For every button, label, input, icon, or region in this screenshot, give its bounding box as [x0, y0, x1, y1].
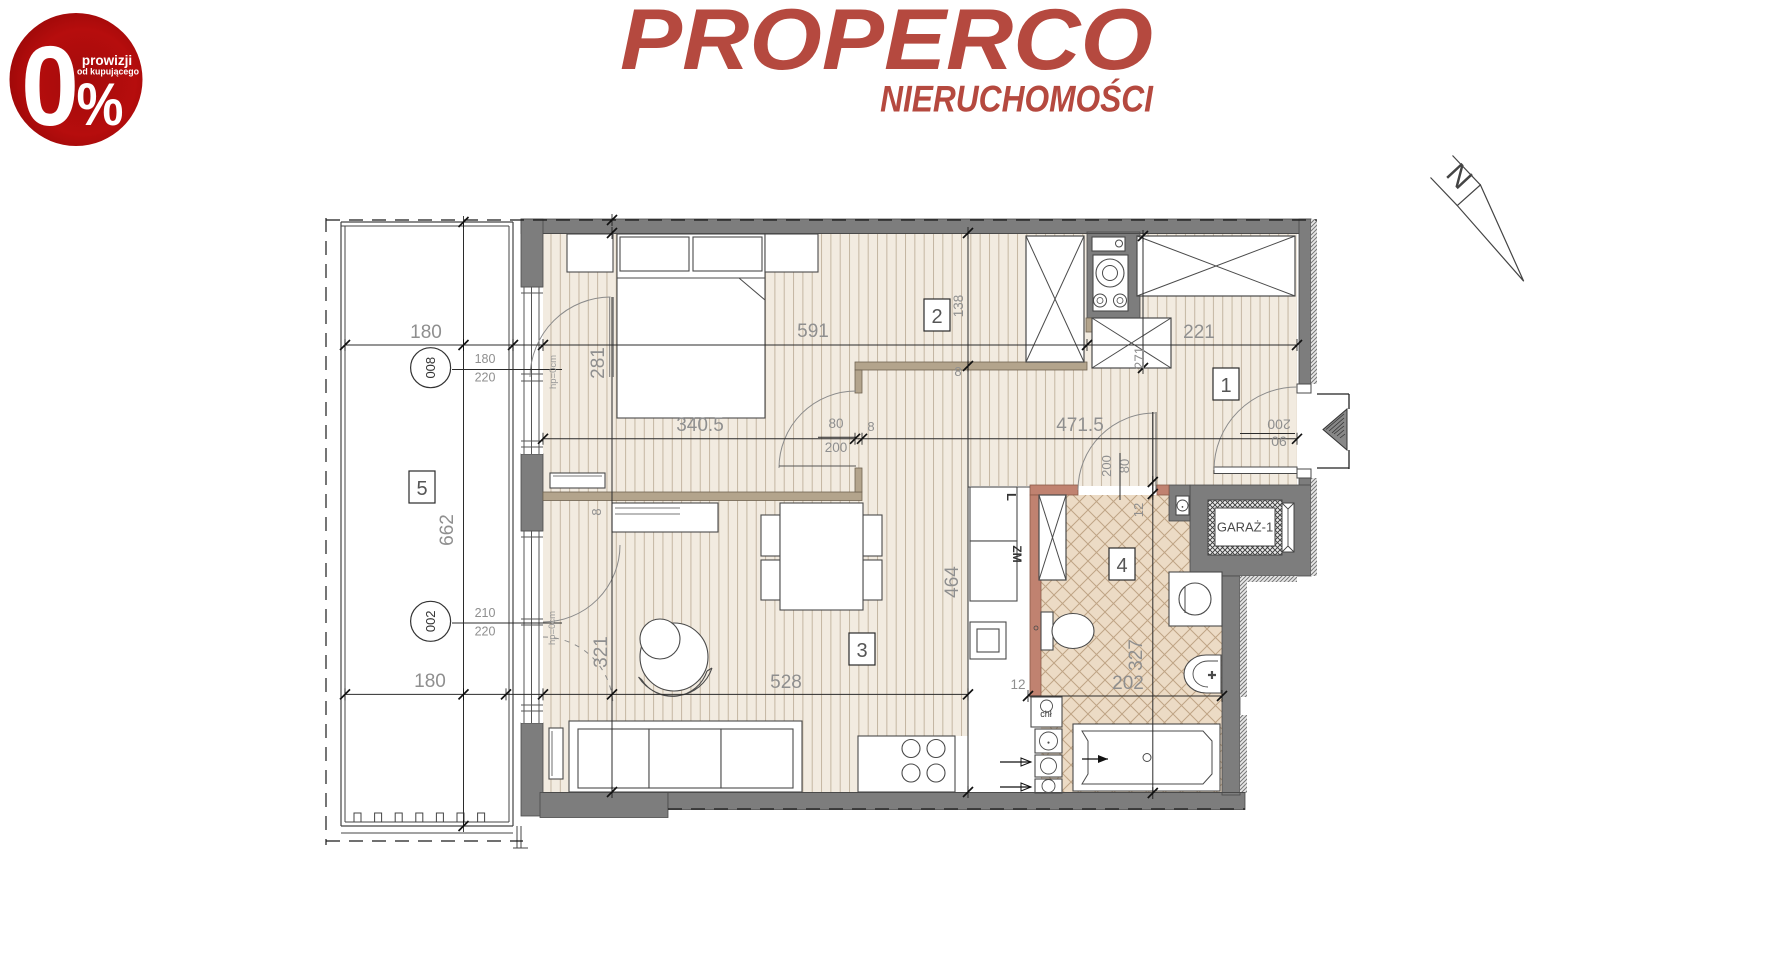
svg-text:471.5: 471.5: [1056, 415, 1104, 436]
svg-text:180: 180: [414, 671, 446, 692]
svg-text:od kupującego: od kupującego: [77, 67, 140, 77]
svg-text:%: %: [77, 71, 124, 138]
svg-text:591: 591: [797, 321, 829, 342]
svg-text:662: 662: [437, 514, 458, 546]
svg-text:138: 138: [951, 295, 966, 318]
svg-text:464: 464: [942, 566, 963, 598]
svg-text:PROPERCO: PROPERCO: [620, 0, 1153, 87]
svg-text:GARAŻ-1: GARAŻ-1: [1217, 520, 1273, 535]
svg-text:●: ●: [1047, 740, 1050, 746]
svg-text:3: 3: [856, 640, 867, 662]
svg-text:1: 1: [1220, 375, 1231, 397]
svg-text:80: 80: [1117, 459, 1132, 473]
svg-text:202: 202: [1112, 673, 1144, 694]
svg-text:hp=0cm: hp=0cm: [547, 611, 558, 645]
svg-text:12: 12: [1131, 503, 1146, 517]
svg-text:002: 002: [423, 610, 438, 632]
svg-text:0: 0: [21, 24, 79, 150]
svg-text:340.5: 340.5: [676, 415, 724, 436]
svg-text:90: 90: [1271, 434, 1287, 450]
svg-text:008: 008: [423, 357, 438, 379]
svg-text:327: 327: [1126, 639, 1147, 671]
svg-text:L: L: [1004, 493, 1019, 501]
svg-text:ZM: ZM: [1010, 545, 1024, 562]
svg-text:NIERUCHOMOŚCI: NIERUCHOMOŚCI: [880, 77, 1154, 120]
svg-text:271: 271: [1132, 347, 1147, 370]
svg-text:5: 5: [416, 478, 427, 500]
svg-text:12: 12: [1010, 677, 1025, 692]
svg-text:321: 321: [591, 636, 612, 668]
svg-text:8: 8: [867, 419, 874, 434]
svg-text:8: 8: [954, 364, 961, 379]
svg-text:4: 4: [1116, 555, 1127, 577]
svg-text:200: 200: [1099, 455, 1114, 477]
svg-text:200: 200: [1267, 417, 1291, 433]
svg-text:8: 8: [589, 508, 604, 515]
svg-text:hp=0cm: hp=0cm: [548, 355, 559, 389]
svg-text:281: 281: [588, 347, 609, 379]
svg-text:200: 200: [825, 440, 848, 455]
svg-text:221: 221: [1183, 322, 1215, 343]
svg-text:210: 210: [475, 606, 496, 620]
svg-text:2: 2: [931, 306, 942, 328]
svg-text:180: 180: [410, 322, 442, 343]
svg-text:528: 528: [770, 672, 802, 693]
svg-text:✚: ✚: [1207, 670, 1216, 682]
svg-text:80: 80: [828, 416, 843, 431]
svg-text:220: 220: [475, 371, 496, 385]
svg-text:220: 220: [475, 624, 496, 638]
svg-text:180: 180: [475, 352, 496, 366]
